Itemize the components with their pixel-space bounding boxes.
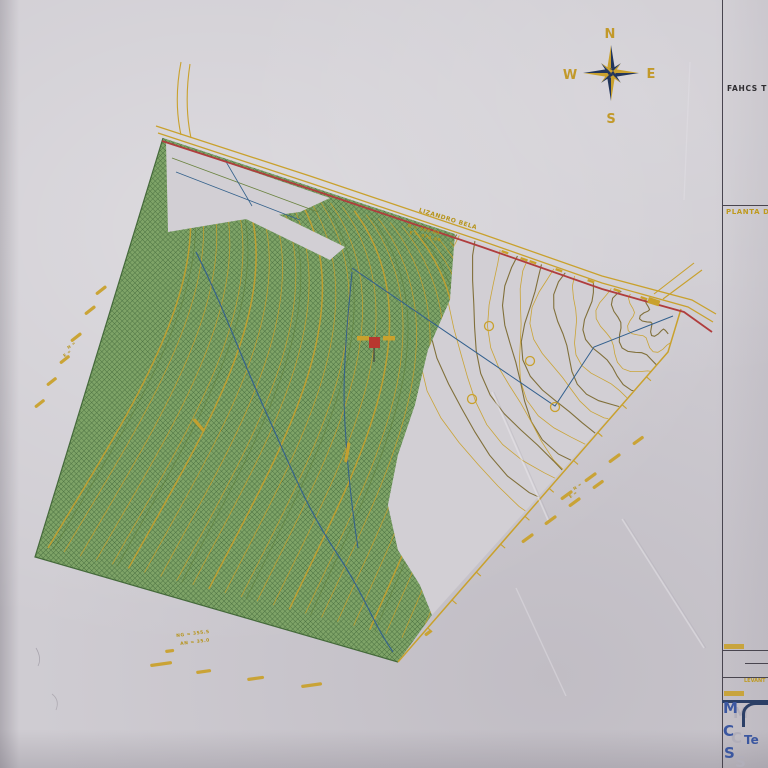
compass-south-label: S — [606, 112, 615, 127]
compass-star-icon — [583, 45, 639, 101]
compass-rose: N S E W — [563, 27, 656, 127]
map-drawing: N S E W — [0, 0, 768, 768]
compass-north-label: N — [605, 27, 616, 42]
compass-west-label: W — [563, 68, 577, 83]
road-fork-northeast — [654, 263, 694, 294]
pencil-scribble — [36, 648, 40, 666]
compass-east-label: E — [647, 67, 656, 82]
photographed-map-sheet: N S E W LIZANDRO BELAN = 355.00E = 973.0… — [0, 0, 768, 768]
road-fork-northwest — [177, 62, 181, 135]
